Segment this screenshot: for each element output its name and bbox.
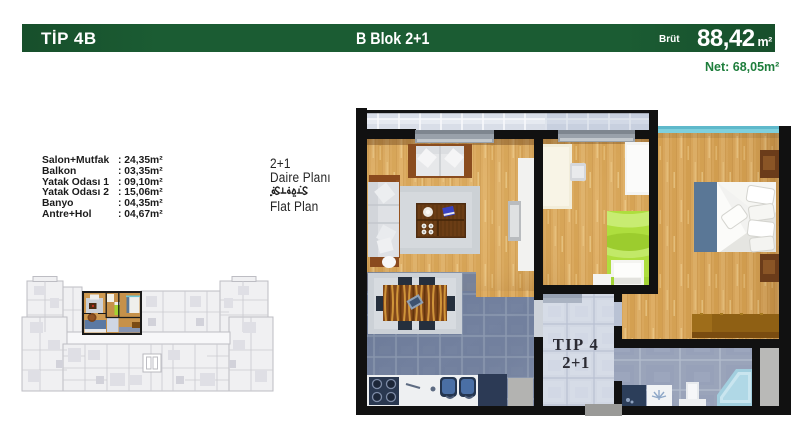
svg-text:TIP 4: TIP 4 bbox=[553, 335, 599, 354]
svg-text:2+1: 2+1 bbox=[562, 353, 589, 372]
